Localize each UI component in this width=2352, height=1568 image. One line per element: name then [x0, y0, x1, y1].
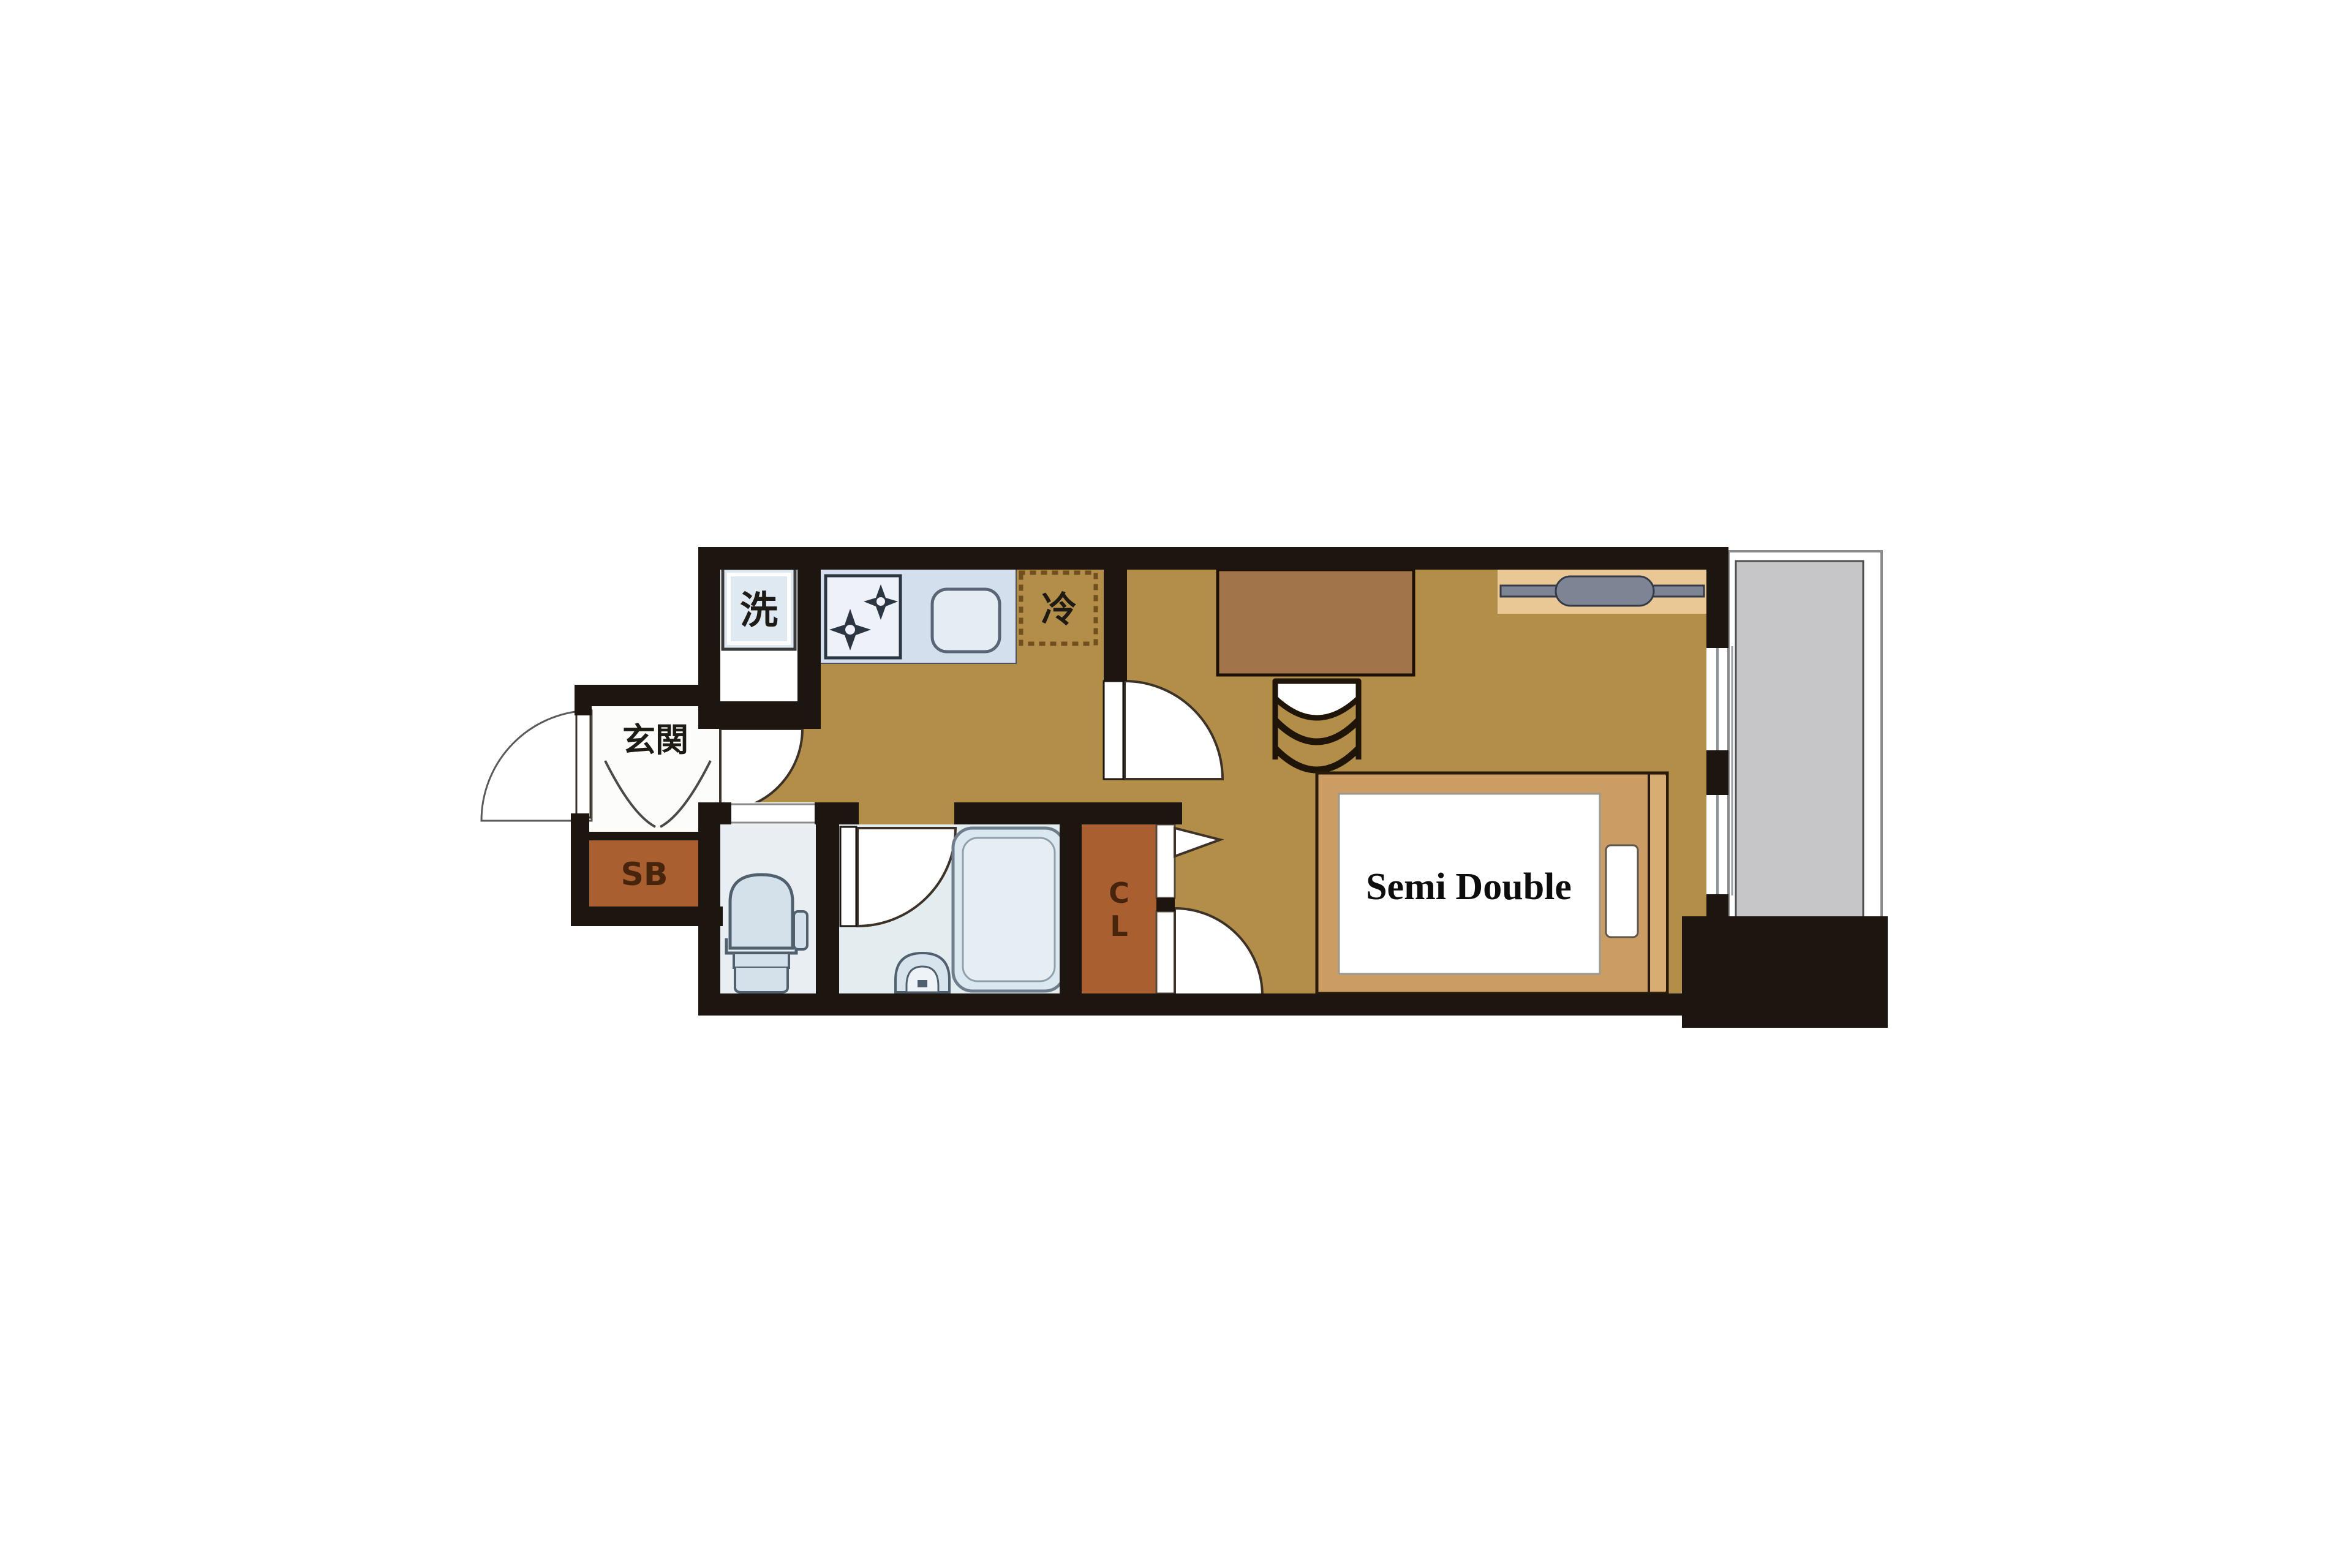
kitchen-sink: [932, 589, 1000, 652]
wall-segment: [1104, 547, 1127, 681]
bathtub: [953, 828, 1065, 991]
kitchen-counter: [816, 568, 1016, 663]
toilet-flush-handle: [794, 911, 807, 949]
desk: [1218, 570, 1414, 675]
wall-segment: [698, 547, 1728, 570]
pillar: [1682, 916, 1888, 1028]
wall-segment: [1156, 898, 1175, 911]
wall-segment: [816, 824, 839, 993]
toilet-door-opening: [731, 802, 815, 824]
floorplan-canvas: 冷 洗 Semi Double: [0, 0, 2352, 1568]
wall-segment: [815, 802, 859, 824]
wall-segment: [1060, 824, 1082, 993]
bed-pillow: [1606, 845, 1638, 937]
washing-machine-label: 洗: [740, 588, 778, 633]
entrance-door-leaf: [576, 712, 590, 818]
entrance-door-swing: [481, 710, 592, 821]
closet-label: L: [1110, 910, 1128, 943]
stove: [826, 576, 900, 658]
wall-segment: [1706, 547, 1728, 648]
hanger-rack: [1498, 568, 1706, 614]
shoe-box-label: SB: [620, 856, 668, 893]
bed-label: Semi Double: [1366, 866, 1572, 908]
window-mullion: [1706, 750, 1728, 795]
closet-label: C: [1109, 876, 1129, 910]
bed: Semi Double: [1317, 773, 1667, 993]
wall-segment: [698, 993, 1728, 1016]
wall-segment: [575, 685, 592, 715]
wall-segment: [797, 547, 821, 729]
entrance-label: 玄関: [622, 721, 688, 759]
hanger-pipe-bracket: [1556, 576, 1654, 606]
wall-segment: [575, 685, 720, 706]
washing-machine: 洗: [723, 568, 795, 649]
floorplan-page: 冷 洗 Semi Double: [0, 0, 2352, 1568]
refrigerator-label: 冷: [1041, 589, 1077, 630]
bed-headboard: [1650, 775, 1666, 991]
wall-segment: [954, 802, 1182, 824]
bathroom-sink: [895, 953, 949, 992]
bathroom-door-leaf: [840, 827, 856, 926]
wall-segment: [698, 813, 720, 1016]
room-door-leaf: [1104, 681, 1123, 779]
wall-segment: [589, 832, 699, 840]
